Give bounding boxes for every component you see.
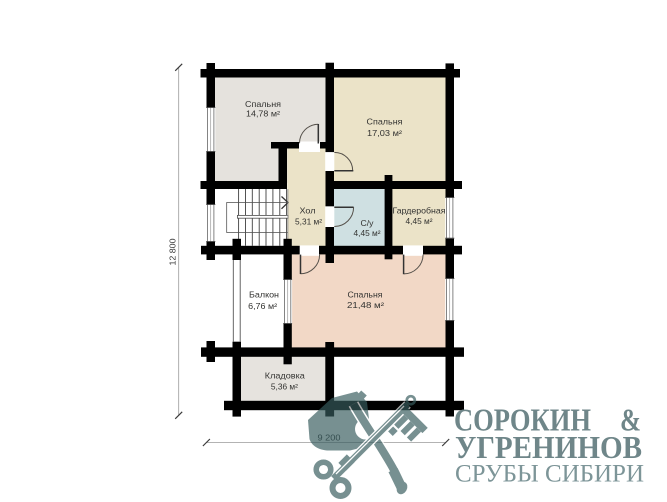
svg-text:Спальня: Спальня	[245, 99, 281, 109]
svg-text:5,31 м²: 5,31 м²	[295, 217, 322, 227]
svg-text:Кладовка: Кладовка	[265, 371, 305, 381]
svg-text:6,76 м²: 6,76 м²	[248, 301, 277, 311]
svg-text:Гардеробная: Гардеробная	[393, 206, 446, 216]
svg-text:14,78 м²: 14,78 м²	[246, 109, 280, 119]
svg-text:4,45 м²: 4,45 м²	[354, 228, 381, 238]
svg-text:Балкон: Балкон	[249, 290, 279, 300]
svg-text:СРУБЫ СИБИРИ: СРУБЫ СИБИРИ	[455, 461, 644, 488]
svg-text:12 800: 12 800	[168, 238, 178, 265]
svg-text:4,45 м²: 4,45 м²	[406, 216, 433, 226]
svg-text:Спальня: Спальня	[367, 117, 403, 127]
svg-text:17,03 м²: 17,03 м²	[367, 128, 402, 138]
svg-text:5,36 м²: 5,36 м²	[271, 382, 298, 392]
svg-text:Хол: Хол	[300, 206, 316, 216]
svg-text:21,48 м²: 21,48 м²	[347, 300, 384, 310]
svg-text:С/у: С/у	[361, 218, 375, 228]
svg-text:Спальня: Спальня	[348, 290, 383, 300]
